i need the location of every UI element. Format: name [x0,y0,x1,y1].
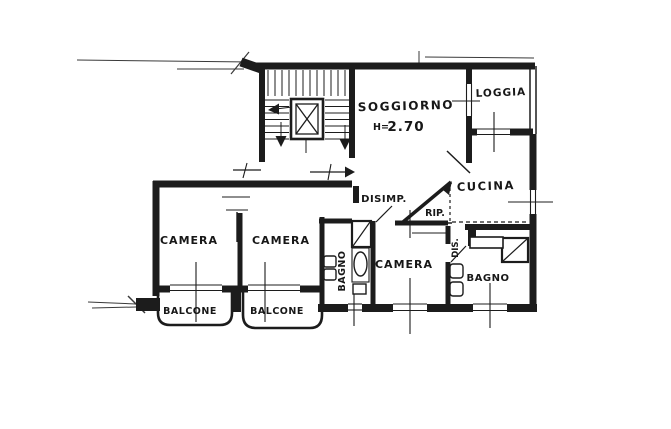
bidet-icon [324,269,336,280]
room-label-ripostiglio: RIP. [425,208,445,219]
room-label-cucina: CUCINA [457,178,515,194]
wc-icon [450,264,463,278]
entrance-arrow-head [345,167,355,178]
soggiorno-height-value: 2.70 [387,119,424,135]
stair-arrow-down-left [276,136,287,147]
room-label-bagno-dx: BAGNO [467,273,510,284]
stair-arrow-down-right [340,139,351,150]
floor-plan-page: SOGGIORNO H= 2.70 LOGGIA CUCINA DISIMP. … [0,0,671,429]
room-label-camera-sx: CAMERA [160,234,218,247]
room-label-loggia: LOGGIA [475,86,526,100]
room-label-soggiorno: SOGGIORNO [358,98,455,115]
room-label-camera-dx: CAMERA [375,258,433,271]
room-label-disimpegno: DISIMP. [361,194,407,205]
sink-icon [353,284,366,294]
wc-icon [324,256,336,267]
room-label-camera-centro: CAMERA [252,234,310,247]
bidet-icon [450,282,463,296]
camera-dx-door-leaf [376,206,392,222]
room-label-bagno-centro: BAGNO [337,251,348,292]
room-label-balcone-sx: BALCONE [163,306,217,317]
sink-counter-icon [470,237,503,248]
bagno-dx-fixtures [450,237,528,296]
room-label-dis: DIS. [451,238,461,258]
floor-plan-drawing: SOGGIORNO H= 2.70 LOGGIA CUCINA DISIMP. … [0,0,671,429]
room-label-balcone-dx: BALCONE [250,306,304,317]
elevator-shaft [291,99,323,139]
